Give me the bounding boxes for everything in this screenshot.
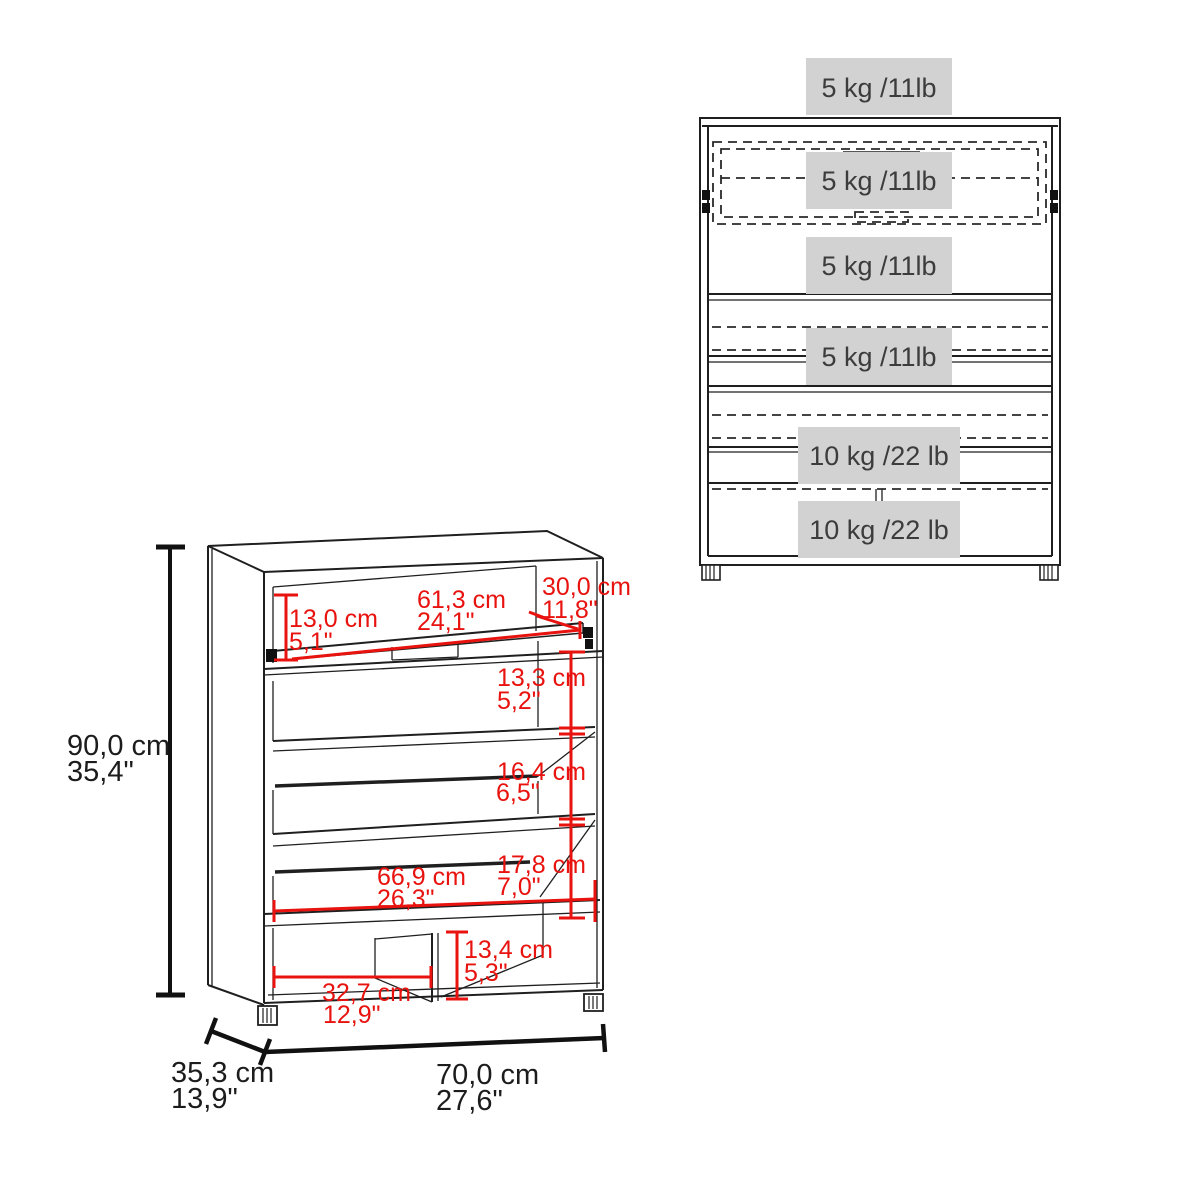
capacity-label-text: 5 kg /11lb (821, 73, 936, 103)
dim-gap-top-in: 5,2" (497, 687, 541, 715)
capacity-label-top: 5 kg /11lb (806, 58, 952, 115)
perspective-view: 13,0 cm 5,1" 61,3 cm 24,1" 30,0 cm 11,8"… (67, 531, 631, 1117)
dim-opening-depth-in: 11,8" (542, 596, 598, 624)
capacity-label-text: 10 kg /22 lb (809, 515, 949, 545)
capacity-label-text: 5 kg /11lb (821, 251, 936, 281)
dim-cubby-width-in: 12,9" (323, 1001, 381, 1029)
front-view-feet (702, 565, 1058, 580)
dim-cubby-height-in: 5,3" (464, 959, 508, 987)
dim-overall-depth-in: 13,9" (171, 1083, 238, 1115)
perspective-feet (258, 994, 603, 1025)
capacity-label-shelf-2: 5 kg /11lb (806, 328, 952, 385)
capacity-label-text: 5 kg /11lb (821, 342, 936, 372)
capacity-label-bottom: 10 kg /22 lb (798, 501, 960, 558)
front-view: 5 kg /11lb 5 kg /11lb 5 kg /11lb 5 kg /1… (700, 58, 1060, 580)
capacity-label-flip-door: 5 kg /11lb (806, 152, 952, 209)
capacity-label-shelf-1: 5 kg /11lb (806, 237, 952, 294)
dim-gap-middle-in: 6,5" (496, 779, 540, 807)
capacity-label-shelf-3: 10 kg /22 lb (798, 427, 960, 484)
capacity-label-text: 10 kg /22 lb (809, 441, 949, 471)
dim-opening-width-in: 24,1" (417, 608, 475, 636)
dim-opening-height-in: 5,1" (289, 628, 333, 656)
dim-gap-lower-in: 7,0" (497, 873, 541, 901)
dim-overall-width-in: 27,6" (436, 1085, 503, 1117)
dim-shelf-width-in: 26,3" (377, 885, 435, 913)
overall-dimension-labels: 90,0 cm 35,4" 35,3 cm 13,9" 70,0 cm 27,6… (67, 730, 539, 1117)
dimension-diagram: 5 kg /11lb 5 kg /11lb 5 kg /11lb 5 kg /1… (0, 0, 1200, 1200)
dim-overall-height-in: 35,4" (67, 756, 134, 788)
capacity-label-text: 5 kg /11lb (821, 166, 936, 196)
dimension-diagram-page: 5 kg /11lb 5 kg /11lb 5 kg /11lb 5 kg /1… (0, 0, 1200, 1200)
